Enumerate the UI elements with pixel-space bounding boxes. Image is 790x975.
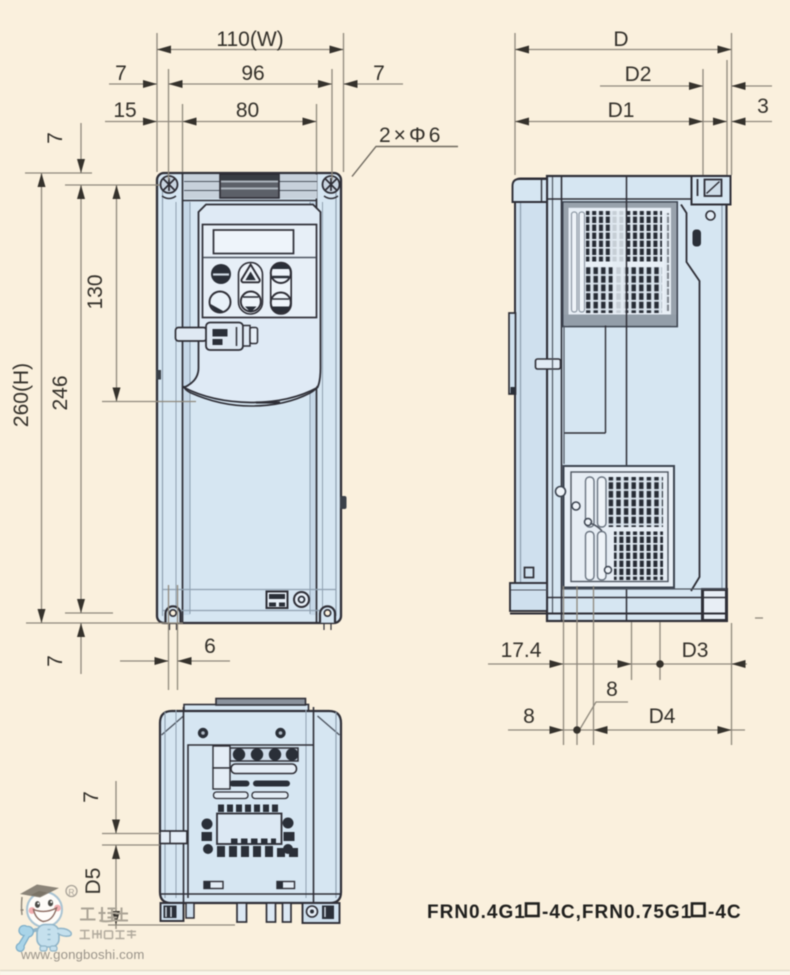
- svg-text:7: 7: [44, 655, 67, 667]
- svg-text:-4C,FRN0.75G1: -4C,FRN0.75G1: [542, 902, 692, 923]
- svg-text:7: 7: [80, 791, 103, 803]
- svg-text:80: 80: [236, 99, 259, 122]
- svg-text:96: 96: [241, 62, 264, 85]
- svg-text:2×Φ6: 2×Φ6: [379, 124, 443, 147]
- svg-text:7: 7: [115, 62, 127, 85]
- svg-text:-4C: -4C: [708, 902, 742, 923]
- svg-text:8: 8: [606, 678, 618, 701]
- svg-text:D: D: [613, 28, 628, 51]
- svg-text:www.gongboshi.com: www.gongboshi.com: [20, 947, 145, 962]
- svg-text:110(W): 110(W): [216, 28, 283, 51]
- svg-text:7: 7: [44, 132, 67, 144]
- svg-text:FRN0.4G1: FRN0.4G1: [427, 902, 526, 923]
- svg-text:246: 246: [49, 375, 72, 410]
- svg-text:D5: D5: [82, 868, 105, 895]
- svg-text:260(H): 260(H): [10, 363, 33, 427]
- svg-text:D4: D4: [649, 705, 676, 728]
- svg-text:8: 8: [523, 705, 535, 728]
- svg-text:17.4: 17.4: [501, 639, 542, 662]
- svg-text:3: 3: [757, 95, 769, 118]
- svg-text:R: R: [68, 887, 74, 897]
- svg-text:D1: D1: [608, 99, 635, 122]
- svg-text:7: 7: [373, 62, 385, 85]
- svg-text:6: 6: [204, 635, 216, 658]
- svg-text:D3: D3: [682, 639, 709, 662]
- svg-text:130: 130: [84, 274, 107, 309]
- svg-text:15: 15: [113, 99, 136, 122]
- svg-text:D2: D2: [625, 63, 652, 86]
